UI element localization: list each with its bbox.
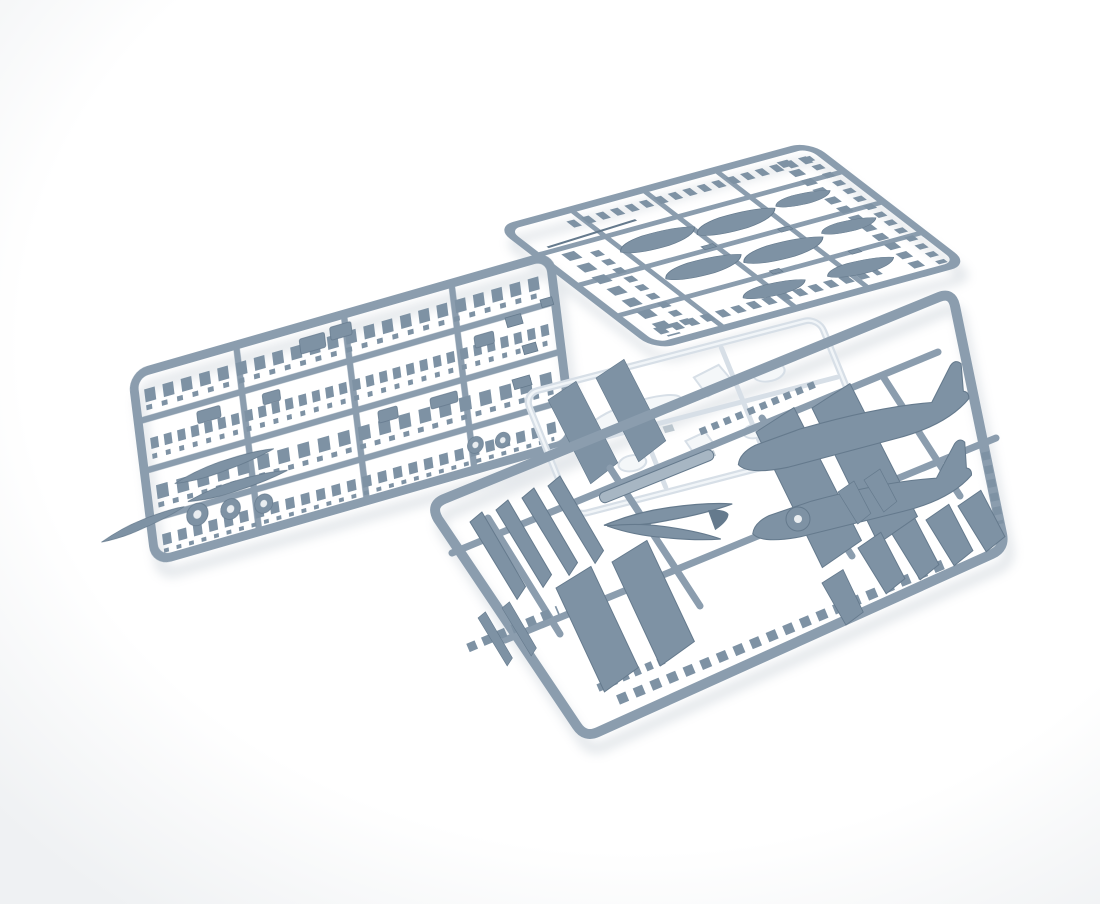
photo-model-kit-sprues: Three blue-grey injection-moulded plasti… bbox=[0, 0, 1100, 904]
photo-canvas: Three blue-grey injection-moulded plasti… bbox=[0, 0, 1100, 904]
spinner-backplate-hub bbox=[794, 515, 802, 523]
